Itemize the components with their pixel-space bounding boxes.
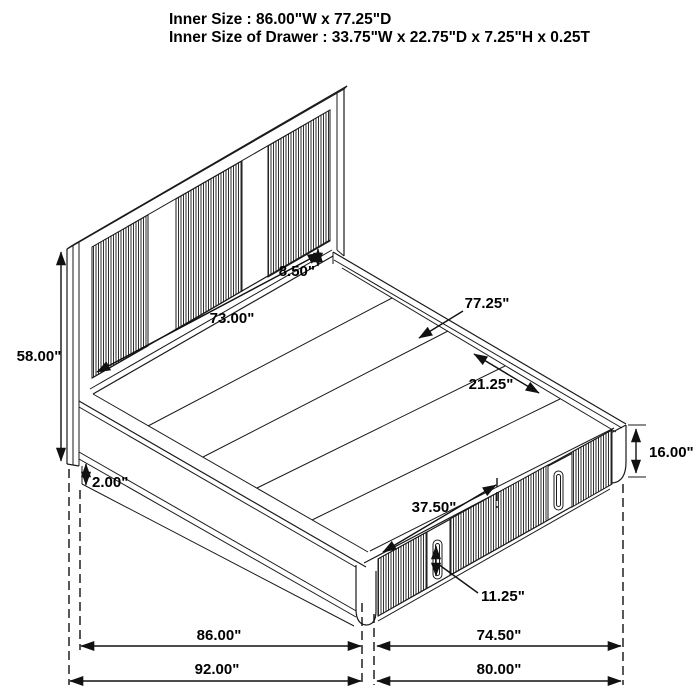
drawer-handle-slot-right-inner <box>557 475 561 507</box>
headboard-fluted-panel-right <box>268 110 330 277</box>
drawer-front-fluted-center <box>450 465 548 575</box>
drawer-front-fluted-left <box>378 532 427 616</box>
bed-dimension-diagram-page: Inner Size : 86.00"W x 77.25"D Inner Siz… <box>0 0 700 700</box>
bed-dimension-diagram: Inner Size : 86.00"W x 77.25"D Inner Siz… <box>0 0 700 700</box>
overall-width-label: 80.00" <box>477 661 522 678</box>
base-reveal-label: 2.00" <box>92 474 128 491</box>
headboard-fluted-panel-left <box>92 215 148 378</box>
foot-left-corner-post <box>356 565 376 625</box>
drawer-front-fluted-right <box>572 430 612 507</box>
drawer-handle-slot-right <box>554 471 563 510</box>
footboard-inner-width-label: 74.50" <box>477 627 522 644</box>
plinth-bottom-edge <box>82 484 354 626</box>
platform-depth-label: 77.25" <box>465 295 510 312</box>
headboard-panel-width-label: 73.00" <box>210 310 255 327</box>
headboard-height-label: 58.00" <box>17 348 62 365</box>
right-side-rail <box>333 252 626 424</box>
side-rail-face <box>79 407 366 626</box>
footboard-height-label: 16.00" <box>649 444 694 461</box>
side-rail-length-label: 86.00" <box>197 627 242 644</box>
foot-right-corner-post <box>612 425 626 483</box>
headboard-fluted-panel-center <box>176 161 242 330</box>
headboard-rail-gap-label: 8.50" <box>279 263 315 280</box>
overall-length-label: 92.00" <box>195 661 240 678</box>
drawer-front-width-label: 37.50" <box>412 499 457 516</box>
header-inner-drawer-size: Inner Size of Drawer : 33.75"W x 22.75"D… <box>169 29 590 46</box>
deck-plank-line <box>203 331 448 457</box>
header-inner-size: Inner Size : 86.00"W x 77.25"D <box>169 11 391 28</box>
drawer-handle-height-label: 11.25" <box>481 588 525 605</box>
drawer-handle-slot-left <box>433 540 442 579</box>
slat-section-label: 21.25" <box>469 376 514 393</box>
